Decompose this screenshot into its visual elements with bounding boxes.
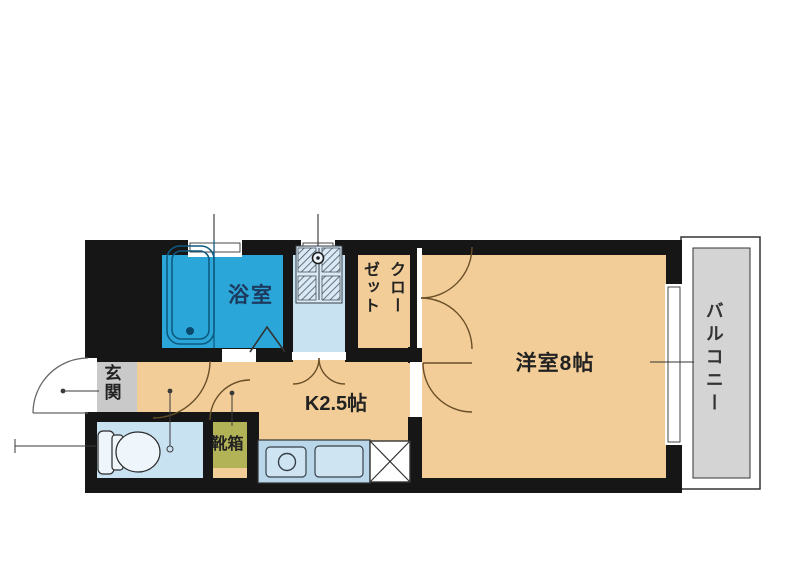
kitchen-door-opening bbox=[410, 362, 422, 417]
kitchen-label: K2.5帖 bbox=[288, 393, 384, 416]
entrance-door bbox=[33, 358, 88, 413]
washing-machine-pan bbox=[296, 246, 342, 303]
kitchen-counter bbox=[258, 440, 370, 483]
western-room-label: 洋室8帖 bbox=[483, 352, 627, 376]
closet-label: クローゼット bbox=[356, 261, 408, 325]
entrance-door-arc bbox=[33, 358, 88, 413]
shoe-box-label: 靴箱 bbox=[206, 436, 249, 454]
refrigerator-space bbox=[370, 441, 410, 482]
balcony-window bbox=[668, 287, 680, 442]
floorplan-image: 浴室 クローゼット 洋室8帖 バルコニー 玄関 K2.5帖 靴箱 bbox=[0, 0, 800, 567]
balcony-label: バルコニー bbox=[703, 301, 724, 451]
sink bbox=[315, 446, 363, 477]
burner bbox=[266, 447, 306, 477]
bathtub-drain bbox=[186, 327, 194, 335]
entrance-opening bbox=[84, 358, 97, 412]
bathroom-label: 浴室 bbox=[215, 284, 287, 308]
toilet-icon bbox=[98, 431, 160, 474]
entrance-label: 玄関 bbox=[101, 364, 121, 414]
